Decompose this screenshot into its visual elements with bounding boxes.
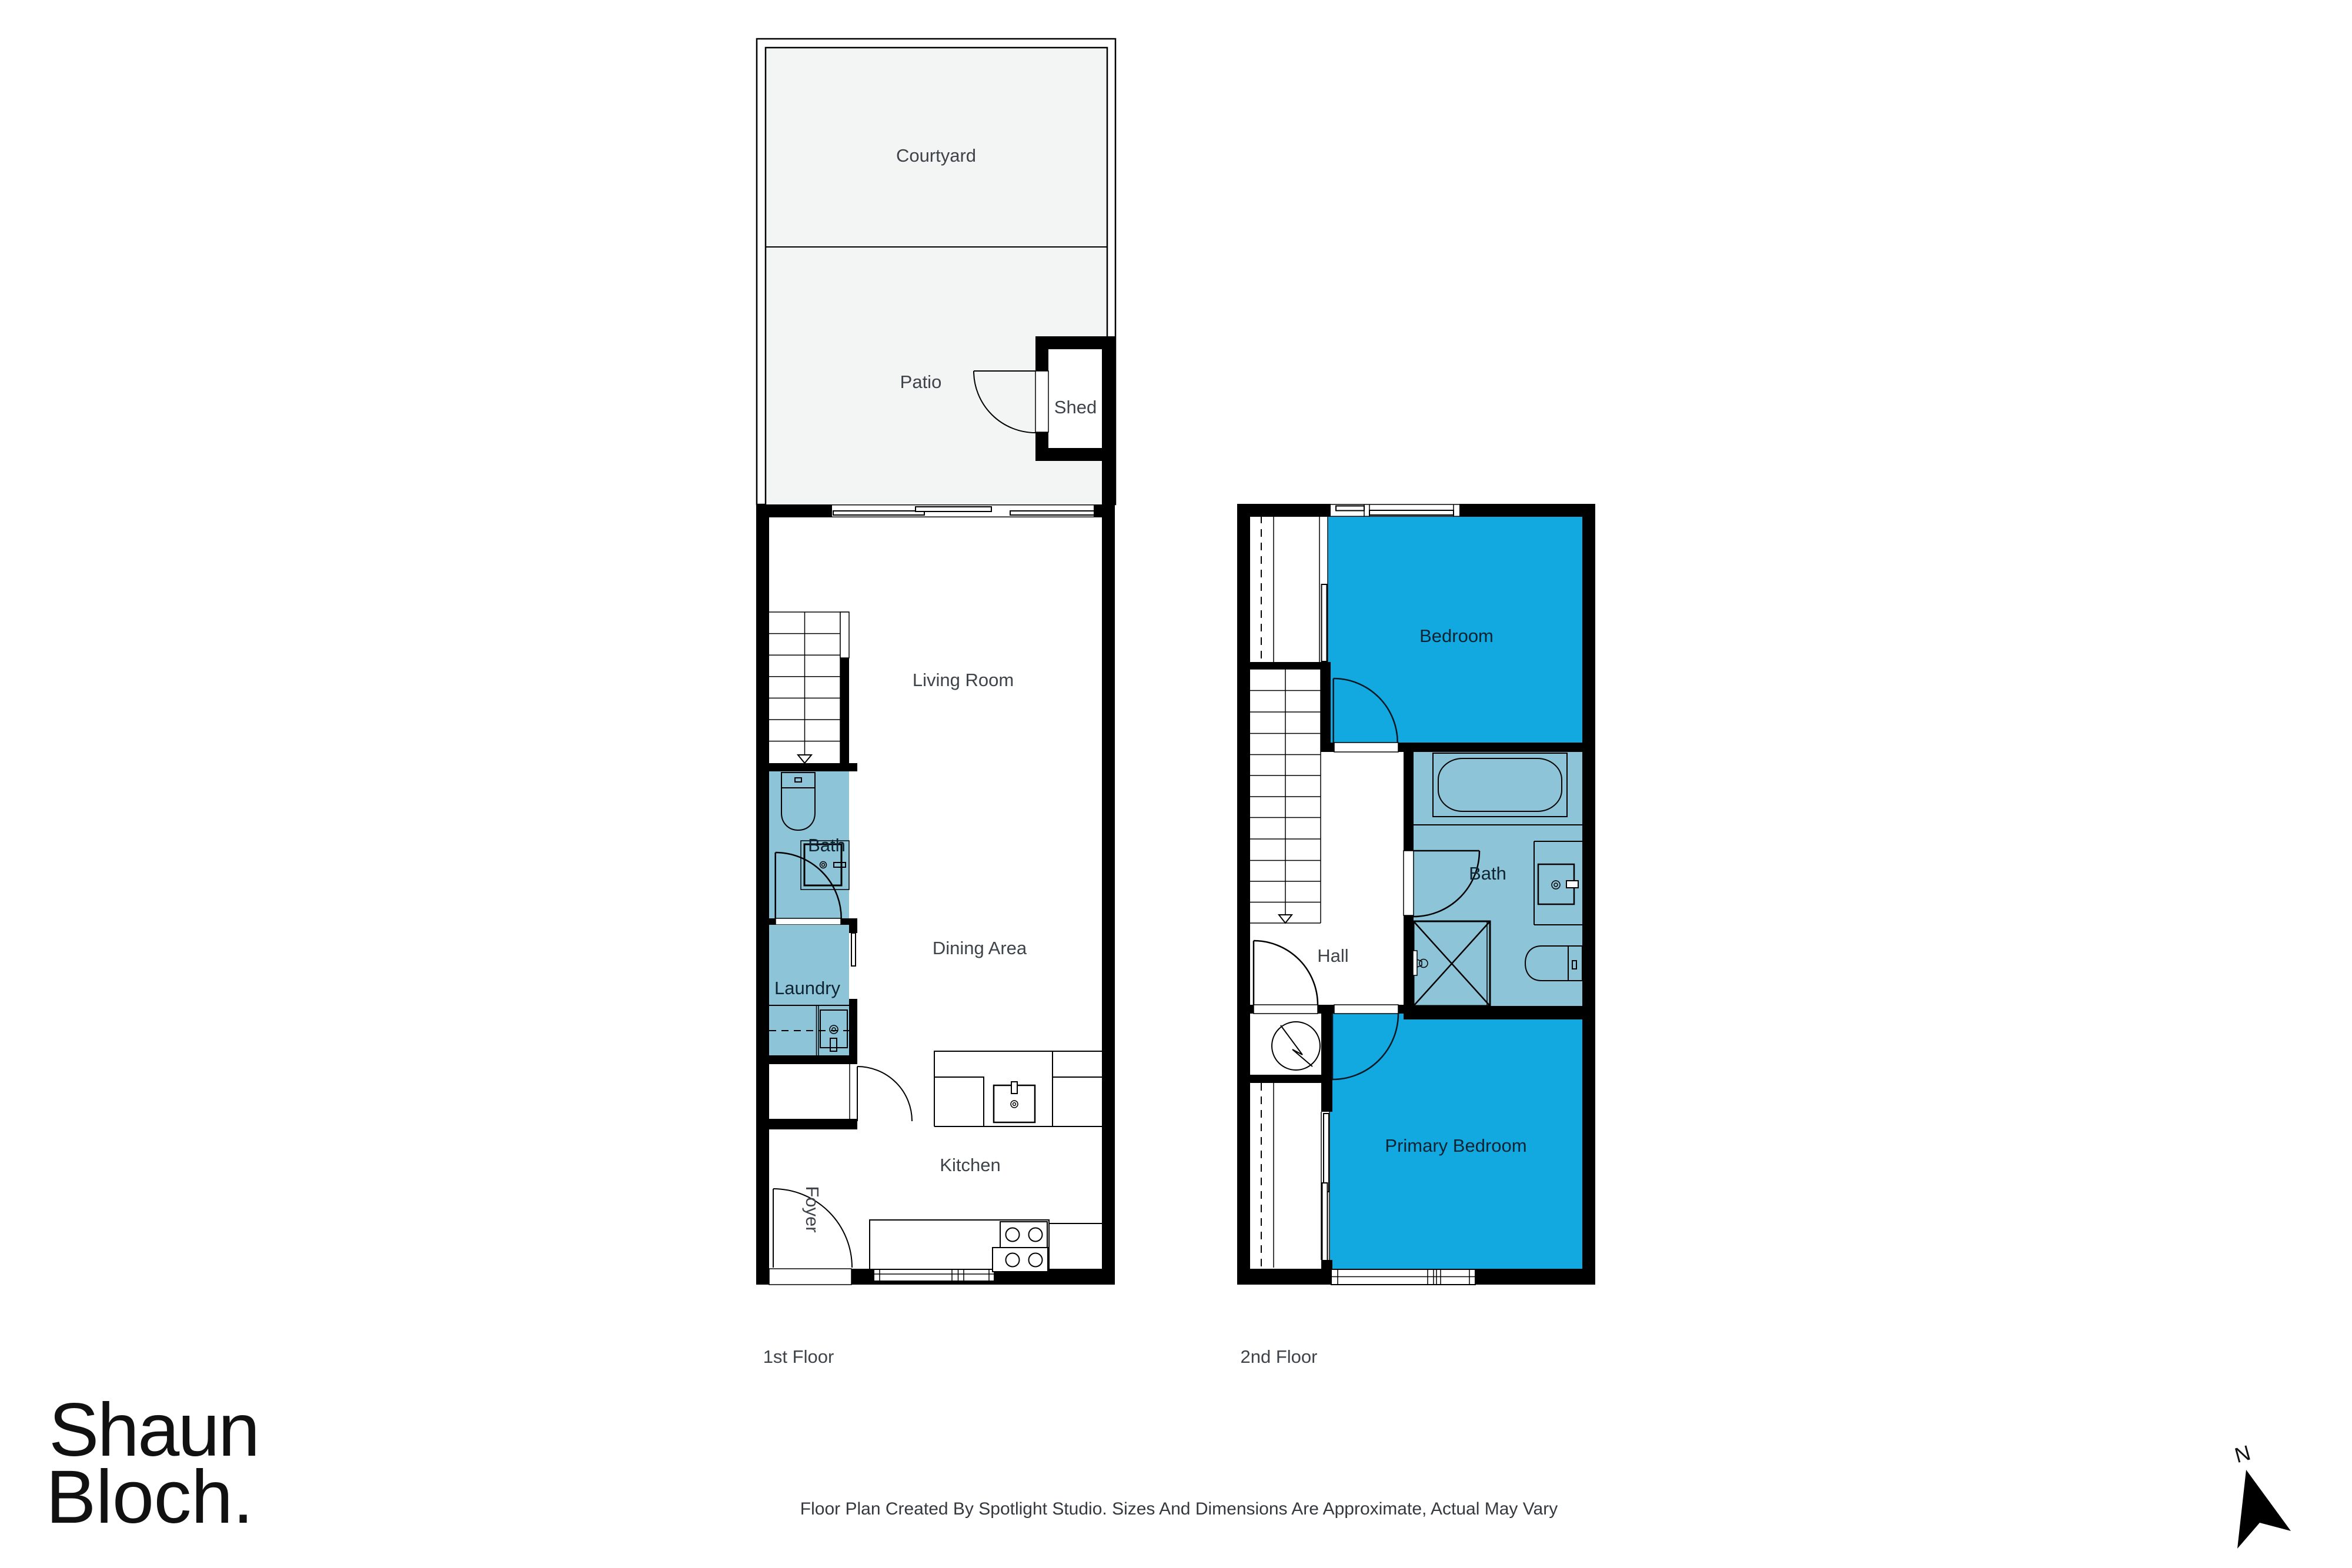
svg-text:Patio: Patio	[900, 372, 942, 392]
svg-text:Bloch.: Bloch.	[46, 1455, 253, 1539]
svg-text:Shed: Shed	[1054, 397, 1097, 417]
svg-text:Courtyard: Courtyard	[896, 145, 976, 166]
svg-text:Floor Plan Created By Spotligh: Floor Plan Created By Spotlight Studio. …	[800, 1499, 1558, 1519]
svg-text:Bedroom: Bedroom	[1419, 626, 1494, 646]
svg-text:Bath: Bath	[808, 835, 846, 855]
svg-text:Laundry: Laundry	[774, 978, 841, 998]
svg-text:Bath: Bath	[1469, 863, 1506, 884]
svg-text:Hall: Hall	[1317, 945, 1348, 966]
svg-text:Kitchen: Kitchen	[940, 1155, 1000, 1175]
svg-text:1st Floor: 1st Floor	[763, 1346, 834, 1367]
svg-text:Living Room: Living Room	[913, 670, 1014, 690]
svg-text:N: N	[2232, 1440, 2253, 1467]
svg-text:Foyer: Foyer	[802, 1186, 823, 1232]
svg-text:Primary Bedroom: Primary Bedroom	[1385, 1135, 1526, 1156]
svg-text:2nd Floor: 2nd Floor	[1241, 1346, 1318, 1367]
svg-text:Dining Area: Dining Area	[933, 938, 1027, 958]
